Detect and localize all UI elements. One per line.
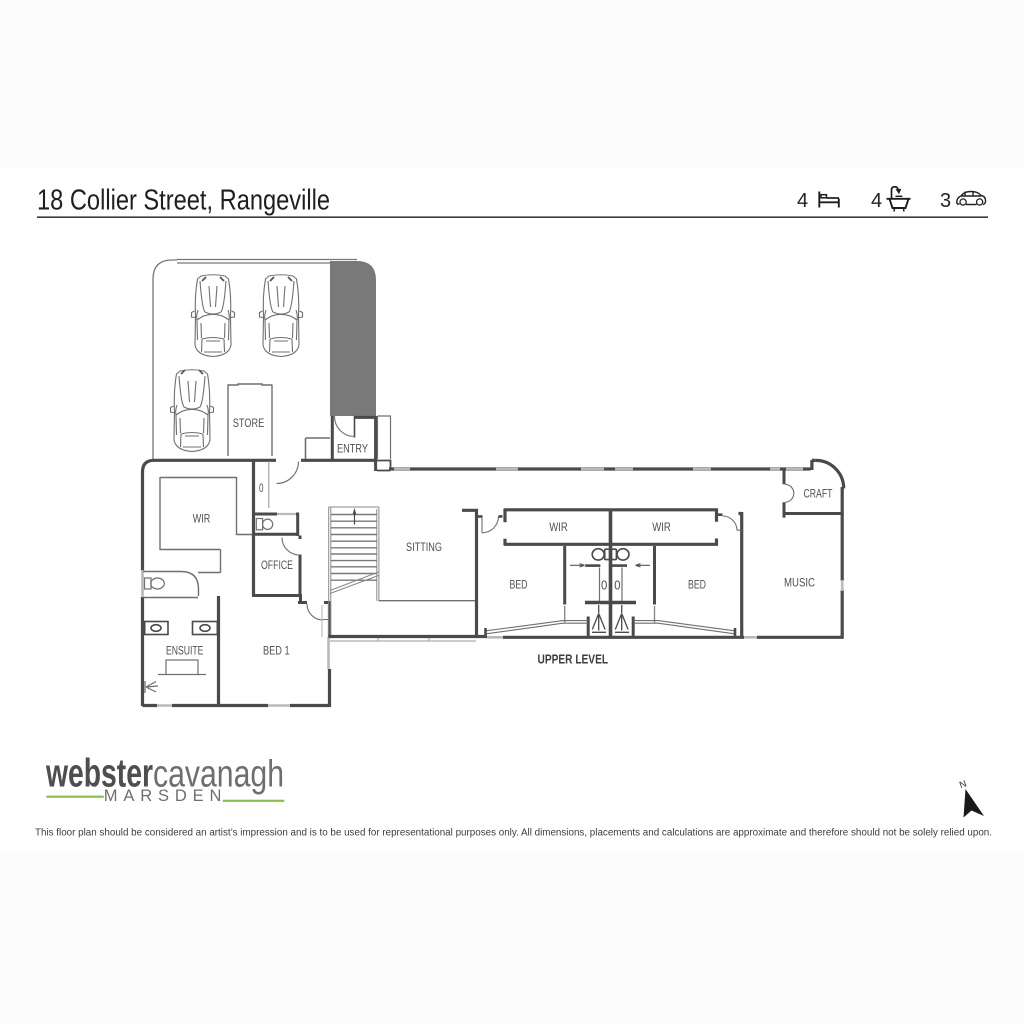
svg-text:0: 0 (614, 577, 620, 592)
svg-text:CRAFT: CRAFT (804, 489, 833, 501)
svg-text:OFFICE: OFFICE (261, 560, 293, 572)
svg-text:18 Collier Street, Rangeville: 18 Collier Street, Rangeville (37, 185, 330, 217)
svg-text:BED 1: BED 1 (263, 646, 290, 658)
svg-text:BED: BED (510, 580, 528, 592)
svg-text:ENSUITE: ENSUITE (166, 646, 204, 658)
svg-text:BED: BED (688, 580, 706, 592)
svg-text:WIR: WIR (549, 522, 568, 534)
svg-text:SITTING: SITTING (406, 542, 442, 554)
svg-text:ENTRY: ENTRY (337, 444, 368, 456)
svg-text:N: N (958, 778, 968, 791)
svg-text:UPPER LEVEL: UPPER LEVEL (538, 653, 609, 667)
svg-text:This floor plan should be cons: This floor plan should be considered an … (35, 828, 992, 839)
svg-text:WIR: WIR (193, 514, 211, 526)
svg-text:0: 0 (601, 577, 607, 592)
svg-text:0: 0 (259, 483, 264, 495)
svg-text:MUSIC: MUSIC (784, 578, 815, 590)
svg-text:STORE: STORE (233, 418, 265, 430)
svg-text:webster: webster (45, 752, 153, 796)
svg-text:WIR: WIR (652, 522, 671, 534)
